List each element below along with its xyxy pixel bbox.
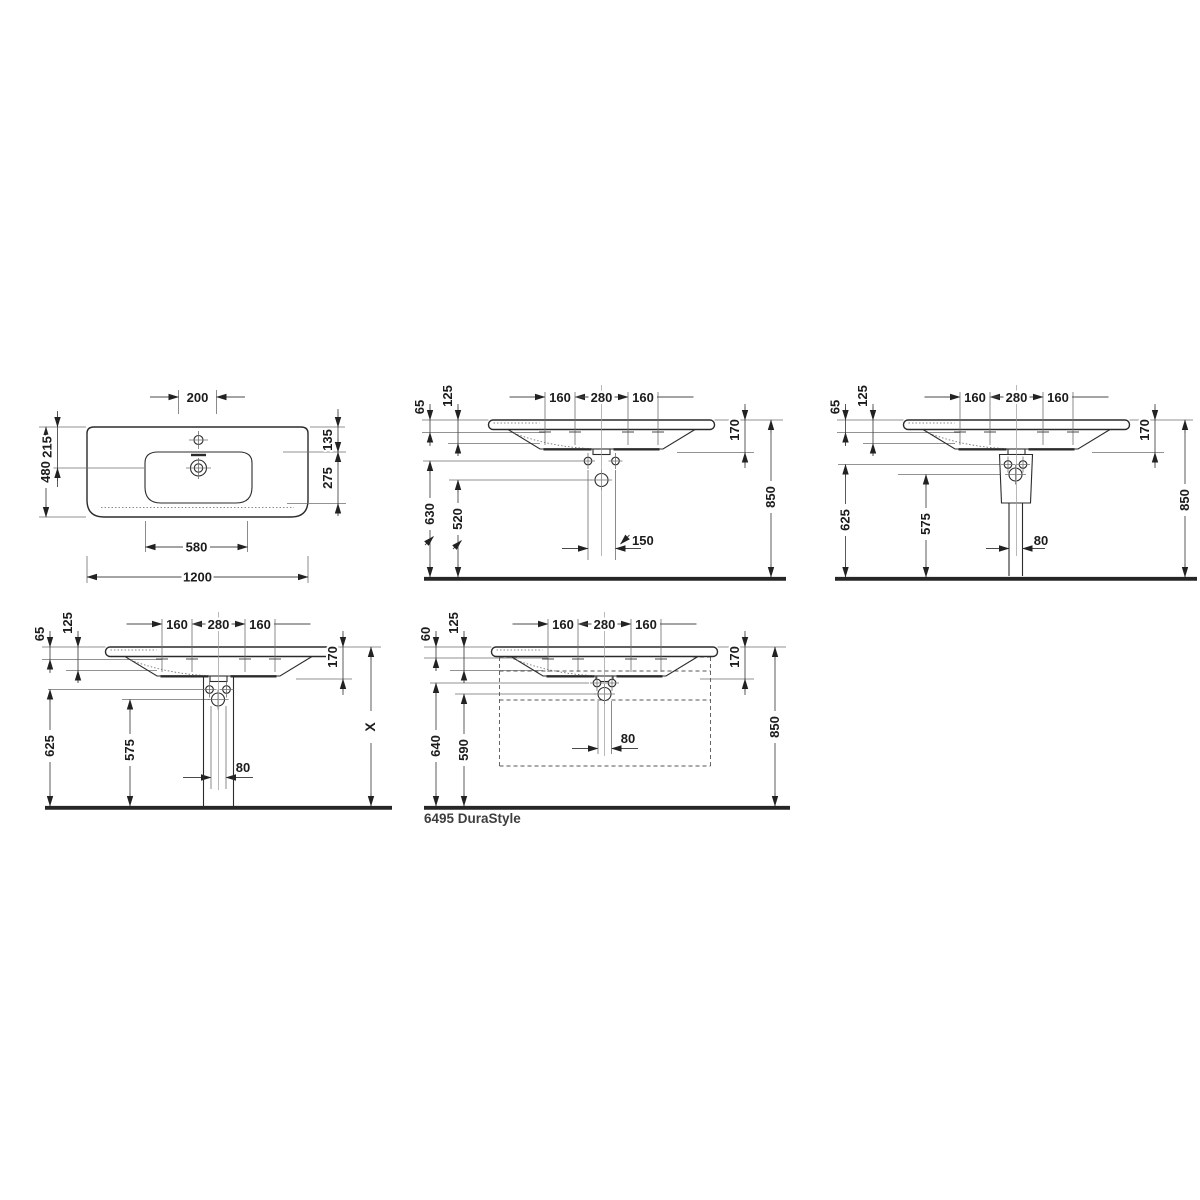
vanity-unit-view: 160 280 160 60 125 640 590 80 170 850 64… [418, 612, 790, 826]
fixing-hole [609, 453, 623, 469]
plan-view: 200 480 215 135 275 580 1200 [38, 390, 346, 585]
dim-tap-center: 200 [187, 390, 209, 405]
fixing-hole [581, 453, 595, 469]
dim-rim-height: 850 [767, 716, 782, 738]
dim-outlet-width: 80 [236, 760, 250, 775]
wall-mounted-view: 160 280 160 65 125 630 520 150 170 850 [412, 385, 786, 579]
dim-outlet-width: 80 [621, 731, 635, 746]
dim-rim-drop: 65 [828, 400, 843, 414]
dim-fixing-spacing: 150 [632, 533, 654, 548]
dim-holes-right: 160 [632, 390, 654, 405]
dim-drain-height: 575 [122, 739, 137, 761]
durastyle-dimension-drawing: 200 480 215 135 275 580 1200 [0, 0, 1200, 1200]
dim-front-height: 125 [60, 612, 75, 634]
dim-outlet-width: 80 [1034, 533, 1048, 548]
pedestal-dimension-labels: 160 280 160 65 125 625 575 80 170 X [32, 612, 379, 775]
semi-pedestal-view: 160 280 160 65 125 625 575 80 170 850 [828, 385, 1198, 579]
dim-holes-left: 160 [964, 390, 986, 405]
dim-holes-center: 280 [591, 390, 613, 405]
dim-back-to-bowl: 135 [320, 429, 335, 451]
dim-rim-height: 850 [1177, 489, 1192, 511]
dim-holes-left: 160 [549, 390, 571, 405]
dim-rim-drop: 65 [412, 400, 427, 414]
dim-fixing-height: 625 [838, 509, 853, 531]
vanity-cabinet-outline [500, 657, 711, 766]
dim-front-height: 125 [440, 385, 455, 407]
dim-drain-height: 520 [450, 508, 465, 530]
dim-fixing-height: 630 [422, 503, 437, 525]
dim-rim-height: 850 [763, 486, 778, 508]
dim-drain-height: 590 [456, 739, 471, 761]
dim-holes-right: 160 [249, 617, 271, 632]
dim-front-height: 125 [446, 612, 461, 634]
dim-fixing-height: 640 [428, 735, 443, 757]
dim-holes-left: 160 [552, 617, 574, 632]
dim-fixing-height: 625 [42, 735, 57, 757]
dim-basin-height: 170 [727, 419, 742, 441]
dim-bowl-width: 580 [186, 540, 208, 555]
dim-basin-height: 170 [325, 646, 340, 668]
dim-bowl-depth: 275 [320, 467, 335, 489]
dim-back-to-drain: 215 [40, 436, 55, 458]
dim-overall-depth: 480 [38, 461, 53, 483]
dim-holes-center: 280 [1006, 390, 1028, 405]
product-caption: 6495 DuraStyle [424, 811, 521, 826]
pedestal-view: 160 280 160 65 125 625 575 80 170 X [32, 612, 392, 808]
dim-holes-center: 280 [594, 617, 616, 632]
dim-holes-right: 160 [1047, 390, 1069, 405]
dim-holes-right: 160 [635, 617, 657, 632]
dim-basin-height: 170 [1137, 419, 1152, 441]
dim-holes-center: 280 [208, 617, 230, 632]
dim-front-height: 125 [855, 385, 870, 407]
wall-dimension-labels: 160 280 160 65 125 630 520 150 170 850 [412, 385, 779, 548]
dim-rim-drop: 60 [418, 627, 433, 641]
technical-drawing-sheet: 200 480 215 135 275 580 1200 [0, 0, 1200, 1200]
dim-drain-height: 575 [918, 513, 933, 535]
dim-holes-left: 160 [166, 617, 188, 632]
dim-basin-height: 170 [727, 646, 742, 668]
dim-rim-drop: 65 [32, 627, 47, 641]
drain-pipe [1009, 503, 1023, 576]
dim-rim-height: X [362, 722, 378, 732]
dim-overall-width: 1200 [183, 570, 212, 585]
